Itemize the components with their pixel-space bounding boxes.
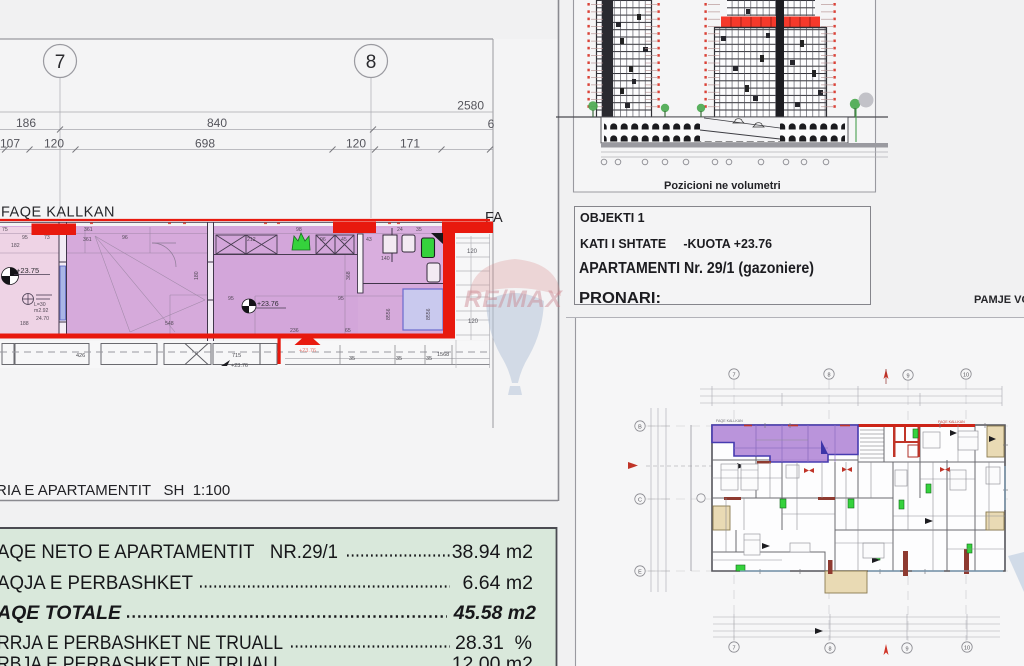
svg-text:E: E [638,570,642,576]
svg-text:+23.76: +23.76 [231,363,248,369]
svg-text:FAQE KALLKAN: FAQE KALLKAN [1,205,115,221]
svg-text:8556: 8556 [426,308,432,320]
svg-text:24.70: 24.70 [36,316,49,322]
svg-text:95: 95 [22,235,28,241]
svg-text:+23.75: +23.75 [16,266,39,275]
svg-text:98: 98 [296,227,302,233]
svg-text:9: 9 [906,374,909,380]
svg-text:368: 368 [346,271,352,280]
svg-text:45.58 m2: 45.58 m2 [453,602,537,624]
svg-text:361: 361 [83,237,92,243]
svg-text:10: 10 [963,373,969,379]
svg-text:96: 96 [122,235,128,241]
svg-text:38.94 m2: 38.94 m2 [452,541,533,563]
svg-text:8556: 8556 [386,308,392,320]
svg-text:120: 120 [467,249,478,255]
svg-text:7: 7 [732,646,735,652]
svg-text:43: 43 [366,237,372,243]
svg-text:140: 140 [381,256,390,262]
svg-text:8: 8 [366,52,377,73]
svg-text:35: 35 [396,356,402,362]
svg-text:73: 73 [44,235,50,241]
svg-text:6: 6 [488,117,495,131]
svg-text:95: 95 [338,296,344,302]
svg-text:212: 212 [247,237,256,243]
svg-text:65: 65 [345,328,351,334]
svg-text:AQJA E PERBASHKET: AQJA E PERBASHKET [0,572,193,594]
svg-text:361: 361 [84,227,93,233]
svg-text:FAQE KALLKAN: FAQE KALLKAN [938,420,965,424]
svg-text:120: 120 [346,137,366,151]
svg-text:6.64 m2: 6.64 m2 [463,572,533,594]
svg-text:PAMJE VOL: PAMJE VOL [974,294,1024,306]
svg-text:+23.76: +23.76 [257,301,279,308]
svg-text:OBJEKTI 1: OBJEKTI 1 [580,211,645,225]
svg-text:35: 35 [349,356,355,362]
svg-text:9: 9 [905,647,908,653]
svg-text:C: C [638,498,642,504]
svg-text:+23.76: +23.76 [299,348,316,354]
svg-text:28.31 %: 28.31 % [455,632,532,654]
svg-text:7: 7 [55,52,66,73]
svg-text:95: 95 [228,296,234,302]
svg-text:Pozicioni ne volumetri: Pozicioni ne volumetri [664,180,781,192]
svg-text:120: 120 [44,137,64,151]
svg-text:AQE TOTALE: AQE TOTALE [0,602,122,624]
svg-text:RRJA E PERBASHKET NE TRUALL: RRJA E PERBASHKET NE TRUALL [0,632,283,654]
svg-text:8: 8 [828,647,831,653]
svg-text:188: 188 [20,321,29,327]
svg-text:180: 180 [194,271,200,280]
svg-text:1568: 1568 [437,352,449,358]
svg-text:RIA E APARTAMENTIT SH 1:100: RIA E APARTAMENTIT SH 1:100 [0,482,230,499]
svg-text:APARTAMENTI Nr. 29/1 (gazonier: APARTAMENTI Nr. 29/1 (gazoniere) [579,260,814,277]
svg-text:186: 186 [16,116,36,130]
svg-text:236: 236 [290,328,299,334]
svg-text:120: 120 [468,319,479,325]
svg-text:RE/MAX: RE/MAX [464,286,563,313]
svg-text:96: 96 [320,237,326,243]
svg-text:B: B [638,425,642,431]
svg-text:24: 24 [397,227,403,233]
svg-text:715: 715 [232,353,241,359]
svg-text:171: 171 [400,137,420,151]
svg-text:7: 7 [732,373,735,379]
svg-text:426: 426 [76,353,85,359]
svg-text:75: 75 [2,227,8,233]
svg-text:KATI I SHTATE -KUOTA +23.7: KATI I SHTATE -KUOTA +23.76 [580,237,772,251]
svg-text:8: 8 [827,373,830,379]
svg-text:35: 35 [416,227,422,233]
svg-text:m2.92: m2.92 [34,308,49,314]
svg-text:182: 182 [11,243,20,249]
svg-text:45: 45 [341,237,347,243]
svg-text:RBJA E PERBASHKET NE TRUALL: RBJA E PERBASHKET NE TRUALL [0,653,283,666]
svg-text:12.00 m2: 12.00 m2 [452,653,533,666]
svg-text:FAQE KALLKAN: FAQE KALLKAN [716,419,743,423]
svg-text:548: 548 [165,321,174,327]
svg-text:107: 107 [0,137,20,151]
svg-text:698: 698 [195,137,215,151]
svg-text:840: 840 [207,116,227,130]
svg-text:PRONARI:: PRONARI: [579,290,661,307]
svg-text:AQE NETO E APARTAMENTIT NR.2: AQE NETO E APARTAMENTIT NR.29/1 [0,541,338,563]
svg-text:2580: 2580 [457,99,484,113]
svg-text:35: 35 [426,356,432,362]
svg-text:10: 10 [964,646,970,652]
